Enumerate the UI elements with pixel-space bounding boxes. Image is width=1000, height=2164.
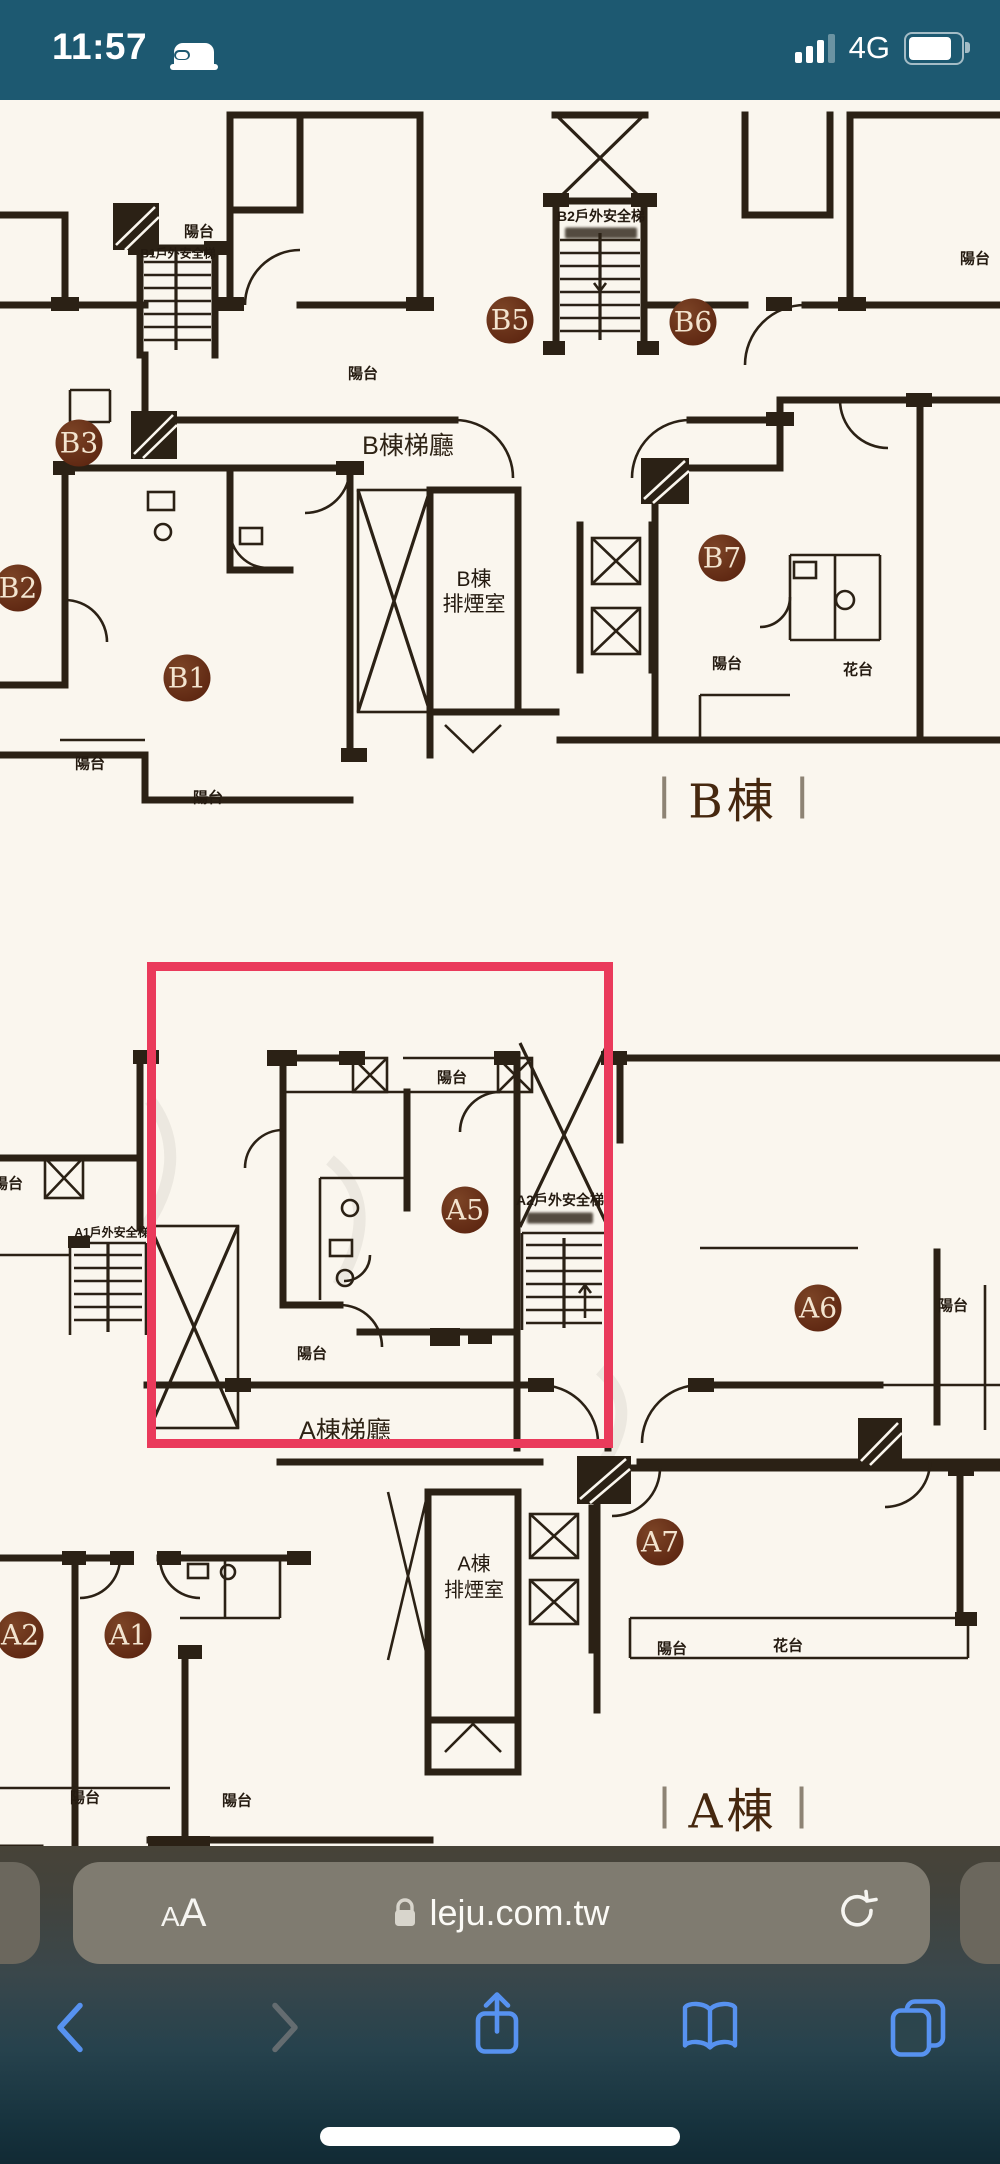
balcony-label: 陽台 — [657, 1638, 687, 1659]
unit-badge-b6: B6 — [670, 299, 717, 346]
unit-badge-b1: B1 — [164, 655, 211, 702]
balcony-label: 陽台 — [0, 1173, 23, 1194]
balcony-label: 陽台 — [70, 1787, 100, 1808]
floorplan-image[interactable]: B3 B5 B6 B2 B1 B7 A5 A6 A7 A1 A2 陽台 陽台 陽… — [0, 100, 1000, 1846]
refresh-button[interactable] — [836, 1889, 878, 1938]
divider — [663, 1786, 667, 1828]
iphone-screen: 11:57 4G — [0, 0, 1000, 2164]
next-tab-stub[interactable] — [960, 1862, 1000, 1964]
cellular-signal-icon — [795, 33, 835, 63]
unit-badge-b5: B5 — [487, 297, 534, 344]
unit-badge-b2: B2 — [0, 565, 42, 612]
divider — [799, 1786, 803, 1828]
balcony-label: 陽台 — [184, 221, 214, 242]
share-button[interactable] — [468, 1990, 526, 2063]
highlight-annotation-box — [147, 962, 613, 1448]
previous-tab-stub[interactable] — [0, 1862, 40, 1964]
a-smoke-room-label-line2: 排煙室 — [444, 1574, 504, 1603]
unit-badge-b3: B3 — [56, 420, 103, 467]
unit-badge-b7: B7 — [699, 535, 746, 582]
flowerbed-label: 花台 — [843, 659, 873, 680]
url-bar[interactable]: AA leju.com.tw — [73, 1862, 930, 1964]
divider — [800, 776, 804, 818]
safari-bottom-chrome: AA leju.com.tw — [0, 1846, 1000, 2164]
balcony-label: 陽台 — [75, 753, 105, 774]
unit-badge-a6: A6 — [795, 1285, 842, 1332]
url-display: leju.com.tw — [73, 1862, 930, 1964]
balcony-label: 陽台 — [222, 1790, 252, 1811]
forward-button[interactable] — [265, 2000, 305, 2061]
b-smoke-room-label-line2: 排煙室 — [443, 588, 506, 618]
unit-badge-a2: A2 — [0, 1612, 44, 1659]
flowerbed-label: 花台 — [773, 1635, 803, 1656]
divider — [662, 776, 666, 818]
illegible-sublabel — [565, 228, 637, 239]
b-wing-title: B棟 — [662, 763, 804, 832]
network-type-label: 4G — [849, 30, 890, 66]
bed-icon — [168, 38, 220, 81]
bookmarks-button[interactable] — [678, 2000, 742, 2061]
back-button[interactable] — [50, 2000, 90, 2061]
balcony-label: 陽台 — [348, 363, 378, 384]
a-smoke-room-label-line1: A棟 — [457, 1548, 490, 1577]
balcony-label: 陽台 — [938, 1295, 968, 1316]
b-lobby-label: B棟梯廳 — [362, 426, 454, 462]
unit-badge-a7: A7 — [637, 1519, 684, 1566]
tabs-button[interactable] — [887, 1997, 949, 2064]
domain-text: leju.com.tw — [429, 1892, 609, 1934]
home-indicator[interactable] — [320, 2127, 680, 2146]
clock: 11:57 — [52, 26, 147, 68]
balcony-label: 陽台 — [960, 248, 990, 269]
battery-icon — [904, 32, 964, 65]
a-wing-title: A棟 — [663, 1773, 804, 1842]
b2-outdoor-stair-label: B2戶外安全梯 — [557, 206, 645, 226]
balcony-label: 陽台 — [193, 787, 223, 808]
status-bar: 11:57 4G — [0, 0, 1000, 100]
a1-outdoor-stair-label: A1戶外安全梯 — [74, 1224, 149, 1241]
balcony-label: 陽台 — [712, 653, 742, 674]
status-indicators: 4G — [795, 30, 964, 66]
lock-icon — [393, 1897, 417, 1929]
unit-badge-a1: A1 — [105, 1612, 152, 1659]
b1-outdoor-stair-label: B1戶外安全梯 — [140, 245, 215, 262]
